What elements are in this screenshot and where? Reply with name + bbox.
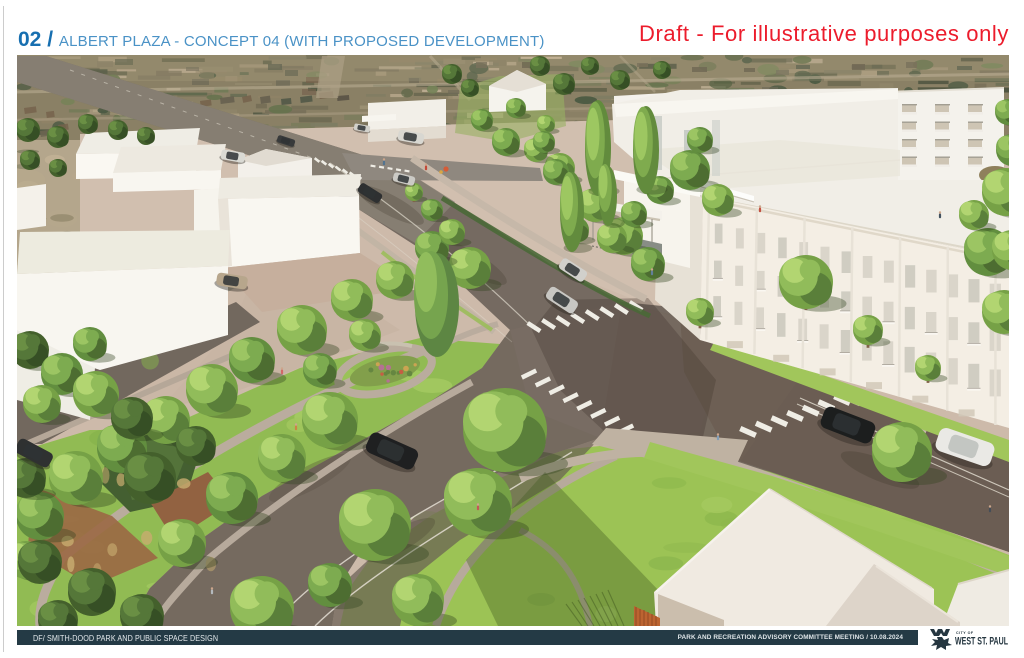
svg-text:CITY OF: CITY OF — [956, 631, 974, 635]
svg-text:WEST ST. PAUL: WEST ST. PAUL — [955, 636, 1008, 648]
